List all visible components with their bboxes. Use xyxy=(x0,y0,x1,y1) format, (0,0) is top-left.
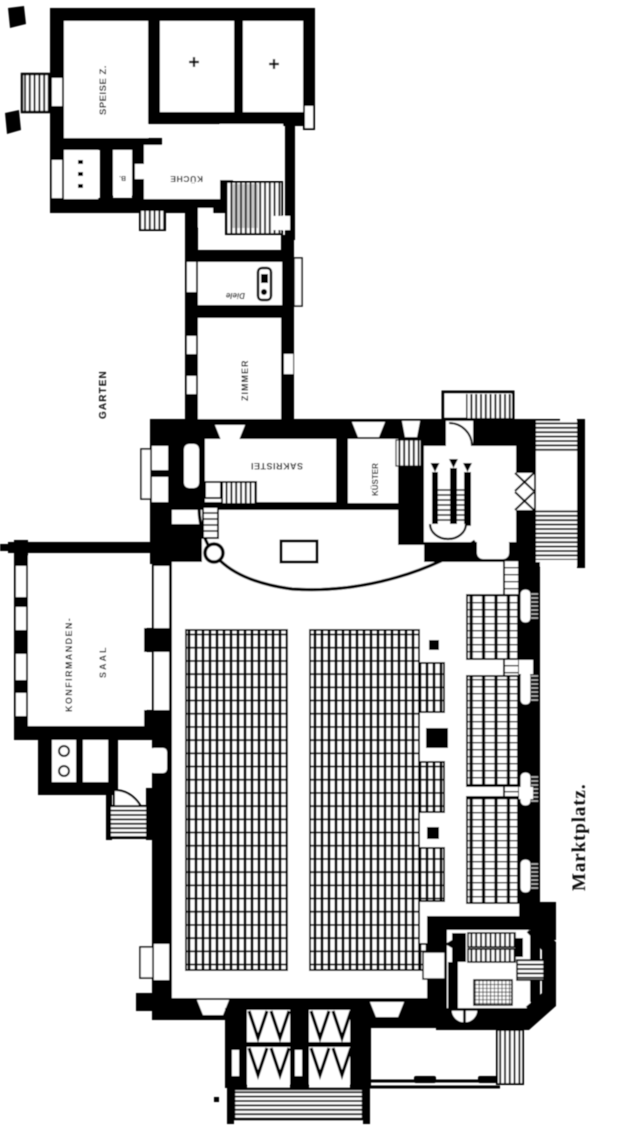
svg-text:Marktplatz.: Marktplatz. xyxy=(569,783,590,891)
svg-text:Diele: Diele xyxy=(225,291,245,300)
svg-text:KÜSTER: KÜSTER xyxy=(371,463,380,496)
svg-text:KONFIRMANDEN-: KONFIRMANDEN- xyxy=(64,617,74,712)
svg-text:SAAL: SAAL xyxy=(98,646,108,679)
svg-text:B.: B. xyxy=(119,174,126,181)
svg-text:KÜCHE: KÜCHE xyxy=(170,174,203,184)
svg-text:SPEISE Z.: SPEISE Z. xyxy=(98,65,109,115)
svg-text:GARTEN: GARTEN xyxy=(98,370,109,419)
svg-text:ZIMMER: ZIMMER xyxy=(240,360,250,402)
svg-text:SAKRISTEI: SAKRISTEI xyxy=(250,461,303,471)
